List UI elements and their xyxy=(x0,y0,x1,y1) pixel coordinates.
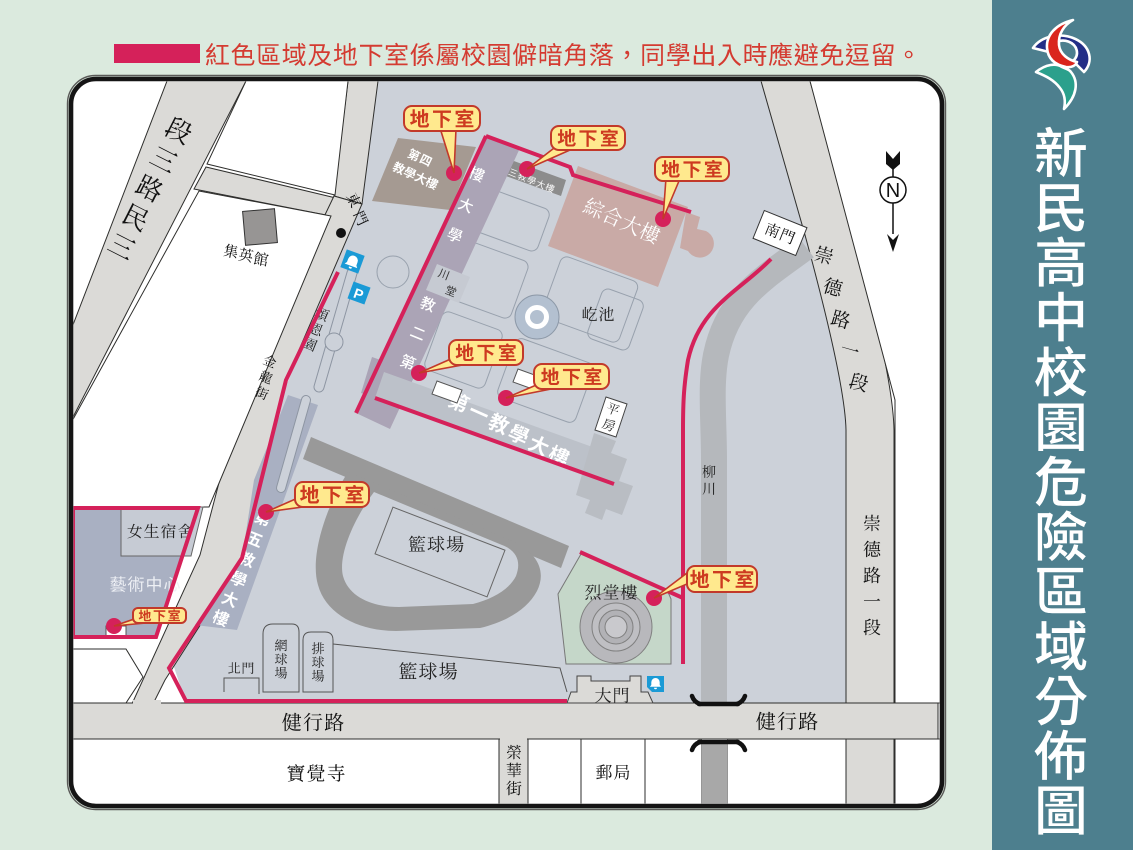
svg-text:N: N xyxy=(886,180,900,202)
